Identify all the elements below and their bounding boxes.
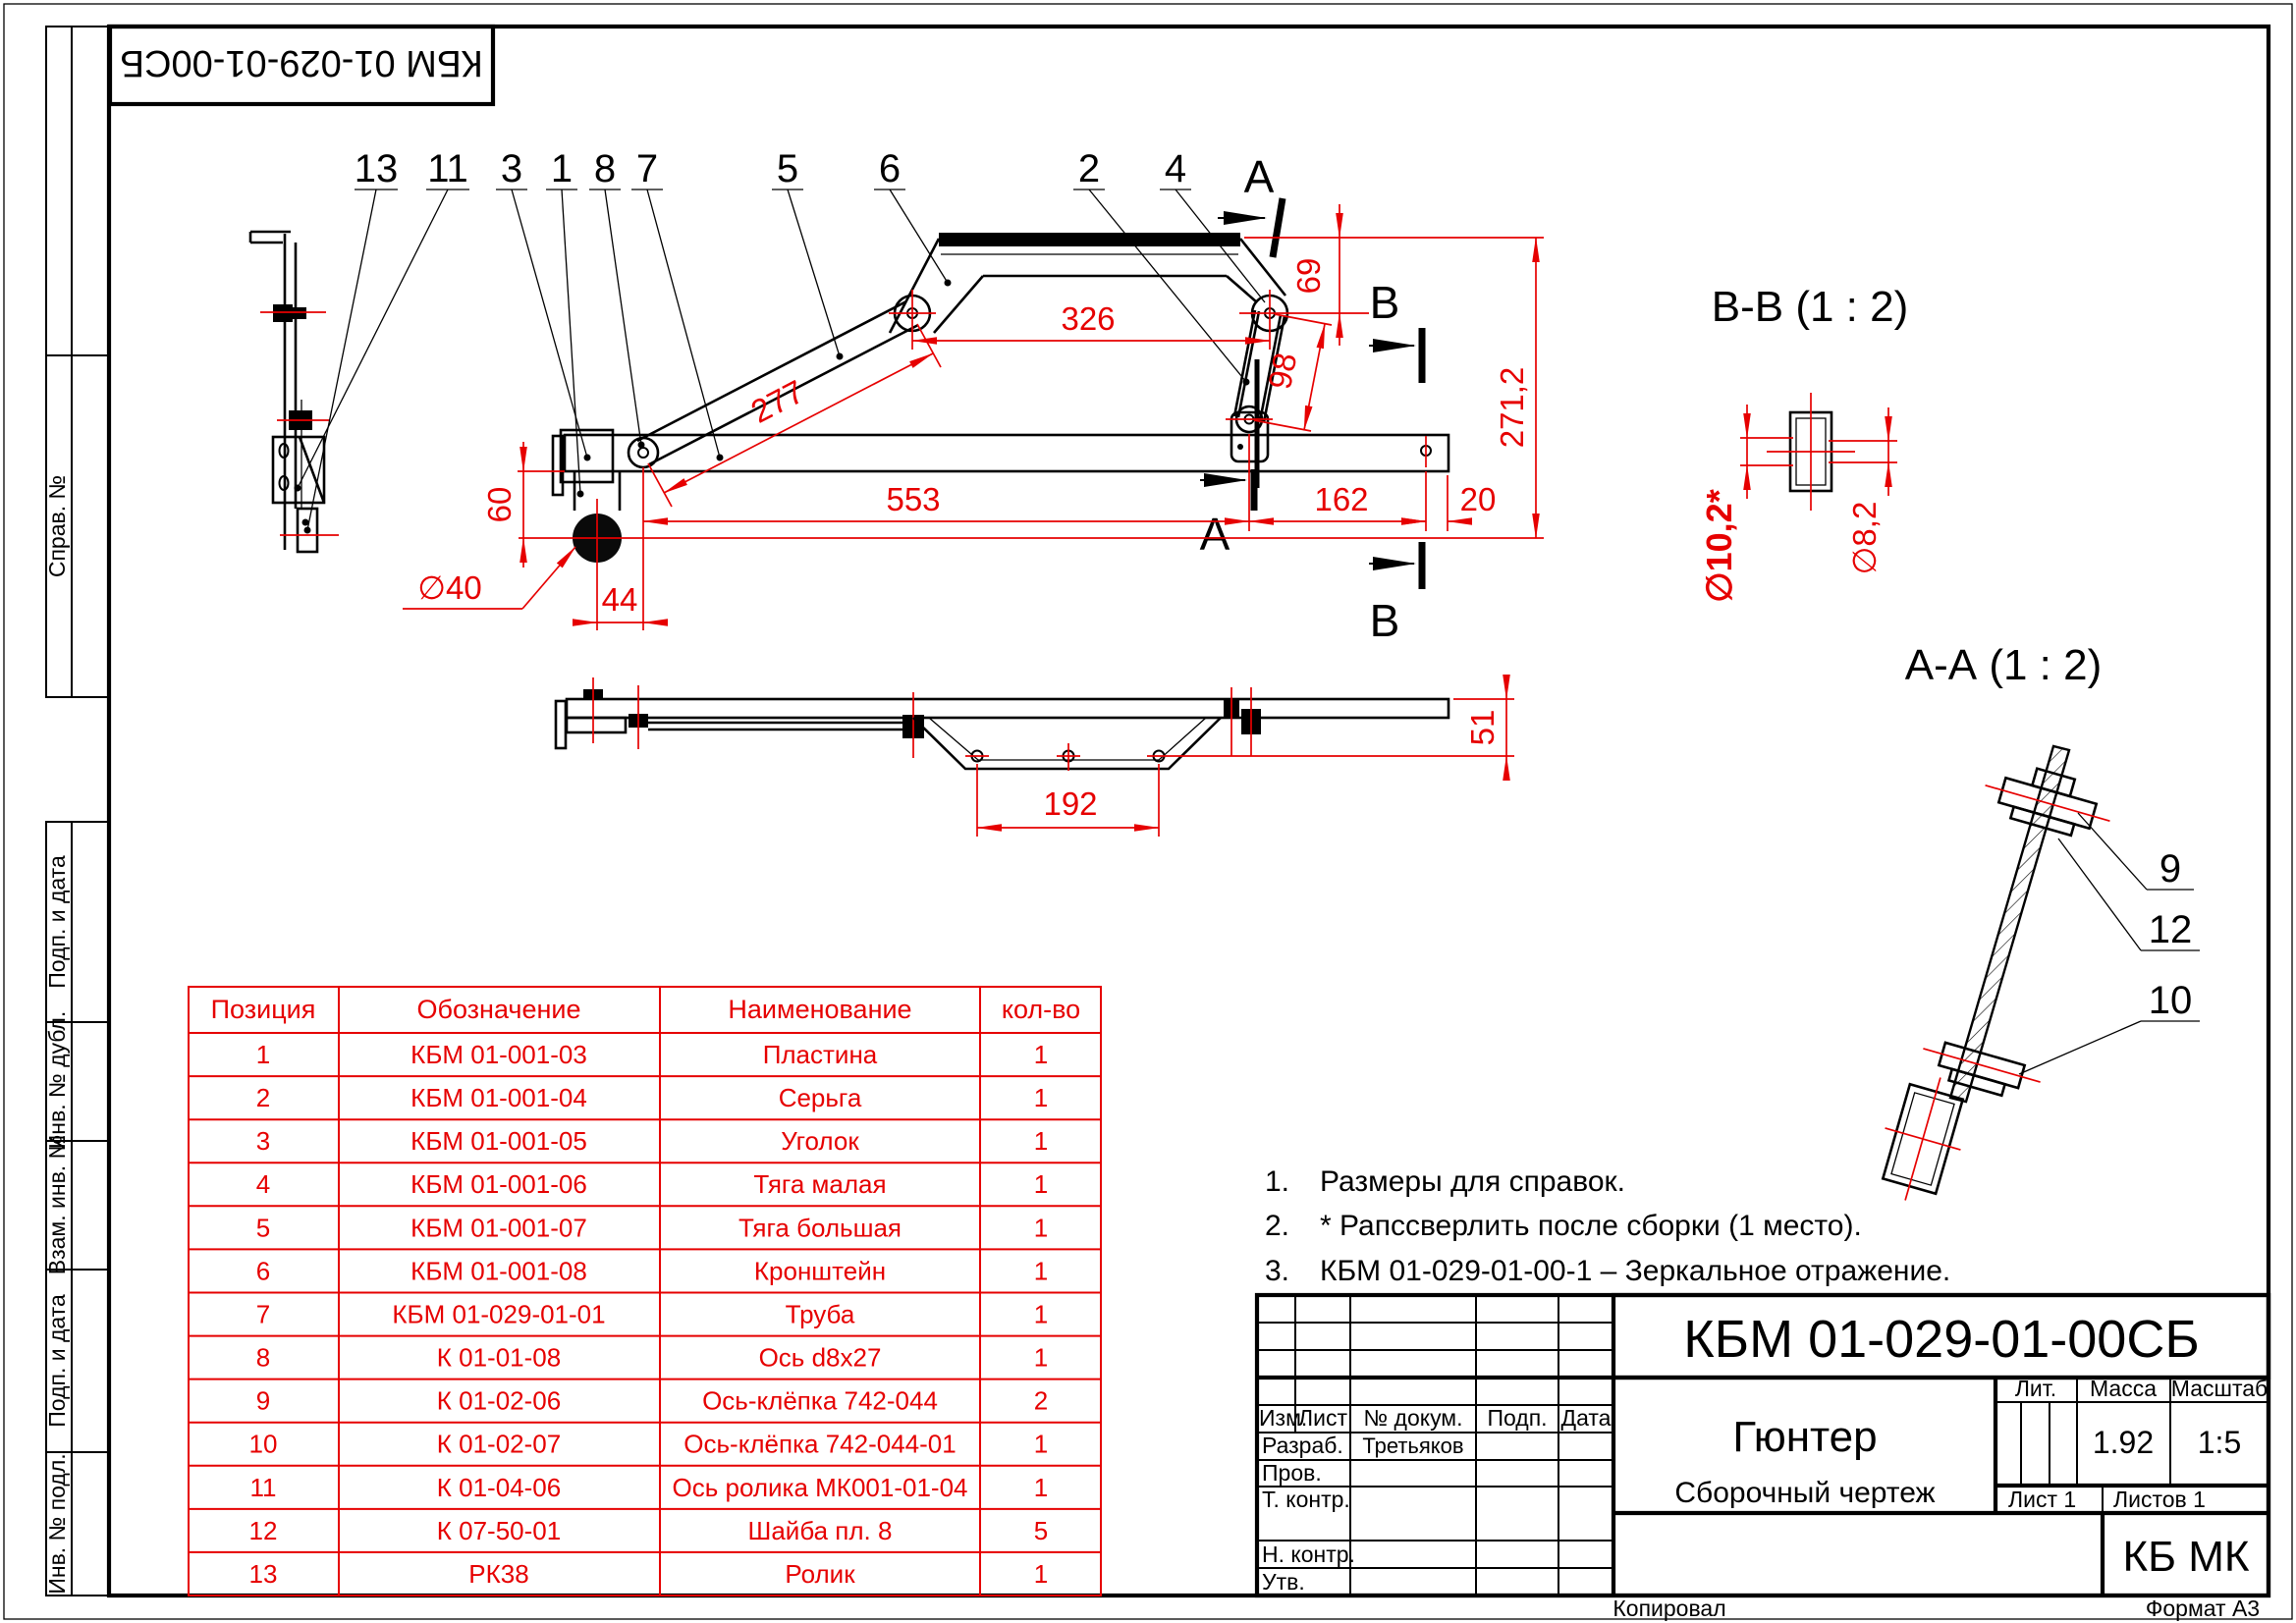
cell-name: Шайба пл. 8	[748, 1516, 893, 1545]
cell-pos: 3	[256, 1126, 270, 1156]
tb-doc-number: КБМ 01-029-01-00СБ	[1683, 1310, 2200, 1369]
note-text: * Рапссверлить после сборки (1 место).	[1320, 1210, 1862, 1242]
tb-sheets: Листов 1	[2113, 1487, 2206, 1512]
cell-name: Ось-клёпка 742-044-01	[683, 1430, 956, 1459]
dim-69: 69	[1290, 258, 1327, 295]
tb-lit-label: Лит.	[2015, 1376, 2056, 1401]
cell-pos: 5	[256, 1213, 270, 1242]
cell-code: К 07-50-01	[437, 1516, 561, 1545]
cell-qty: 1	[1034, 1126, 1048, 1156]
callout-9: 9	[2159, 847, 2181, 891]
cell-name: Ролик	[785, 1559, 855, 1589]
section-a-bottom-letter: А	[1200, 509, 1230, 560]
sidebar-label: Справ. №	[44, 475, 70, 577]
dim-192: 192	[1043, 785, 1097, 822]
section-b-bottom-letter: В	[1370, 595, 1400, 646]
cell-code: К 01-01-08	[437, 1343, 561, 1373]
sidebar-label: Инв. № подл.	[44, 1453, 70, 1594]
cell-pos: 1	[256, 1040, 270, 1069]
cell-qty: 5	[1034, 1516, 1048, 1545]
cell-code: КБМ 01-001-04	[410, 1083, 587, 1112]
dim-51: 51	[1464, 710, 1501, 746]
tb-mass-label: Масса	[2090, 1376, 2157, 1401]
dim-20: 20	[1460, 481, 1497, 517]
cell-pos: 13	[249, 1559, 278, 1589]
cell-code: КБМ 01-001-05	[410, 1126, 587, 1156]
dim-diam-8-2: ∅8,2	[1846, 502, 1883, 575]
tb-row-prov: Пров.	[1262, 1460, 1322, 1486]
sidebar-label: Инв. № дубл.	[44, 1011, 70, 1151]
callout-12: 12	[2149, 908, 2193, 951]
cell-qty: 1	[1034, 1040, 1048, 1069]
dim-553: 553	[886, 481, 940, 517]
note-number: 1.	[1265, 1165, 1289, 1198]
cell-name: Серьга	[779, 1083, 862, 1112]
cell-code: К 01-04-06	[437, 1473, 561, 1502]
cell-name: Труба	[786, 1299, 855, 1328]
section-a-top-letter: А	[1244, 151, 1275, 202]
cell-qty: 1	[1034, 1169, 1048, 1199]
cell-code: КБМ 01-001-06	[410, 1169, 587, 1199]
cell-pos: 7	[256, 1299, 270, 1328]
cell-code: К 01-02-06	[437, 1386, 561, 1416]
tb-product-name: Гюнтер	[1732, 1413, 1877, 1461]
cell-code: КБМ 01-029-01-01	[392, 1299, 605, 1328]
cell-pos: 6	[256, 1256, 270, 1285]
cell-code: РК38	[468, 1559, 528, 1589]
cell-pos: 10	[249, 1430, 278, 1459]
cell-name: Уголок	[781, 1126, 859, 1156]
callout-number: 1	[551, 147, 573, 190]
bb-title: В-В (1 : 2)	[1712, 283, 1909, 331]
cell-pos: 12	[249, 1516, 278, 1545]
cell-code: К 01-02-07	[437, 1430, 561, 1459]
dim-326: 326	[1061, 300, 1115, 337]
callout-10: 10	[2149, 979, 2193, 1022]
tb-row-nkontr: Н. контр.	[1262, 1542, 1355, 1567]
cell-name: Тяга большая	[738, 1213, 902, 1242]
cell-qty: 1	[1034, 1343, 1048, 1373]
callout-number: 8	[594, 147, 616, 190]
footer-copy: Копировал	[1613, 1596, 1725, 1621]
tb-col-list: Лист	[1298, 1405, 1347, 1431]
cell-code: КБМ 01-001-03	[410, 1040, 587, 1069]
callout-number: 13	[355, 147, 399, 190]
cell-name: Кронштейн	[754, 1256, 886, 1285]
tb-col-date: Дата	[1561, 1405, 1612, 1431]
dim-60: 60	[481, 487, 518, 523]
cell-qty: 1	[1034, 1559, 1048, 1589]
tb-sheet: Лист 1	[2008, 1487, 2076, 1512]
cell-code: КБМ 01-001-07	[410, 1213, 587, 1242]
table-header-qty: кол-во	[1002, 995, 1080, 1024]
cell-pos: 4	[256, 1169, 270, 1199]
tb-mass-value: 1.92	[2093, 1425, 2154, 1460]
sidebar-label: Подп. и дата	[44, 855, 70, 989]
sidebar-label: Подп. и дата	[44, 1294, 70, 1428]
cell-qty: 1	[1034, 1256, 1048, 1285]
note-number: 2.	[1265, 1210, 1289, 1242]
sidebar-label: Взам. инв. №	[44, 1135, 70, 1275]
cell-qty: 2	[1034, 1386, 1048, 1416]
table-header-code: Обозначение	[417, 995, 581, 1024]
tb-col-doc: № докум.	[1363, 1405, 1462, 1431]
table-header-pos: Позиция	[211, 995, 316, 1024]
callout-number: 3	[501, 147, 522, 190]
dim-diam-40: ∅40	[417, 569, 481, 606]
aa-title: А-А (1 : 2)	[1905, 641, 2103, 689]
note-text: Размеры для справок.	[1320, 1165, 1625, 1198]
dim-diam-10-2: ∅10,2*	[1699, 489, 1739, 602]
callout-number: 7	[636, 147, 658, 190]
cell-pos: 8	[256, 1343, 270, 1373]
tb-row-utv: Утв.	[1262, 1569, 1305, 1595]
callout-number: 6	[879, 147, 901, 190]
cell-qty: 1	[1034, 1473, 1048, 1502]
cell-qty: 1	[1034, 1430, 1048, 1459]
dim-44: 44	[602, 581, 638, 618]
cell-name: Ось d8x27	[759, 1343, 882, 1373]
footer-format: Формат А3	[2146, 1596, 2260, 1621]
cell-name: Тяга малая	[753, 1169, 886, 1199]
cell-pos: 11	[250, 1473, 277, 1502]
tb-col-sign: Подп.	[1487, 1405, 1547, 1431]
cell-name: Ось ролика МК001-01-04	[672, 1473, 967, 1502]
dim-98: 98	[1261, 350, 1303, 392]
cell-pos: 2	[256, 1083, 270, 1112]
note-number: 3.	[1265, 1255, 1289, 1287]
table-header-name: Наименование	[728, 995, 911, 1024]
note-text: КБМ 01-029-01-00-1 – Зеркальное отражени…	[1320, 1255, 1950, 1287]
callout-number: 2	[1078, 147, 1100, 190]
tb-scale-label: Масштаб	[2171, 1376, 2268, 1401]
cell-qty: 1	[1034, 1213, 1048, 1242]
tb-scale-value: 1:5	[2198, 1425, 2241, 1460]
stamp-doc-number: КБМ 01-029-01-00СБ	[120, 42, 483, 83]
callout-number: 5	[777, 147, 798, 190]
cell-name: Пластина	[763, 1040, 878, 1069]
tb-org: КБ МК	[2122, 1533, 2249, 1581]
dim-162: 162	[1314, 481, 1368, 517]
cell-name: Ось-клёпка 742-044	[702, 1386, 938, 1416]
cell-qty: 1	[1034, 1299, 1048, 1328]
cell-qty: 1	[1034, 1083, 1048, 1112]
section-b-top-letter: В	[1370, 277, 1400, 328]
tb-row-tkontr: Т. контр.	[1262, 1487, 1350, 1512]
callout-number: 4	[1165, 147, 1186, 190]
tb-row-razrab: Разраб.	[1262, 1433, 1343, 1458]
drawing-sheet: КБМ 01-029-01-00СБ Справ. № Подп. и дата…	[0, 0, 2296, 1623]
tb-razrab-name: Третьяков	[1362, 1434, 1463, 1458]
cell-pos: 9	[256, 1386, 270, 1416]
cell-code: КБМ 01-001-08	[410, 1256, 587, 1285]
dim-271-2: 271,2	[1494, 367, 1530, 449]
tb-doc-type: Сборочный чертеж	[1674, 1477, 1935, 1509]
callout-number: 11	[427, 147, 468, 190]
